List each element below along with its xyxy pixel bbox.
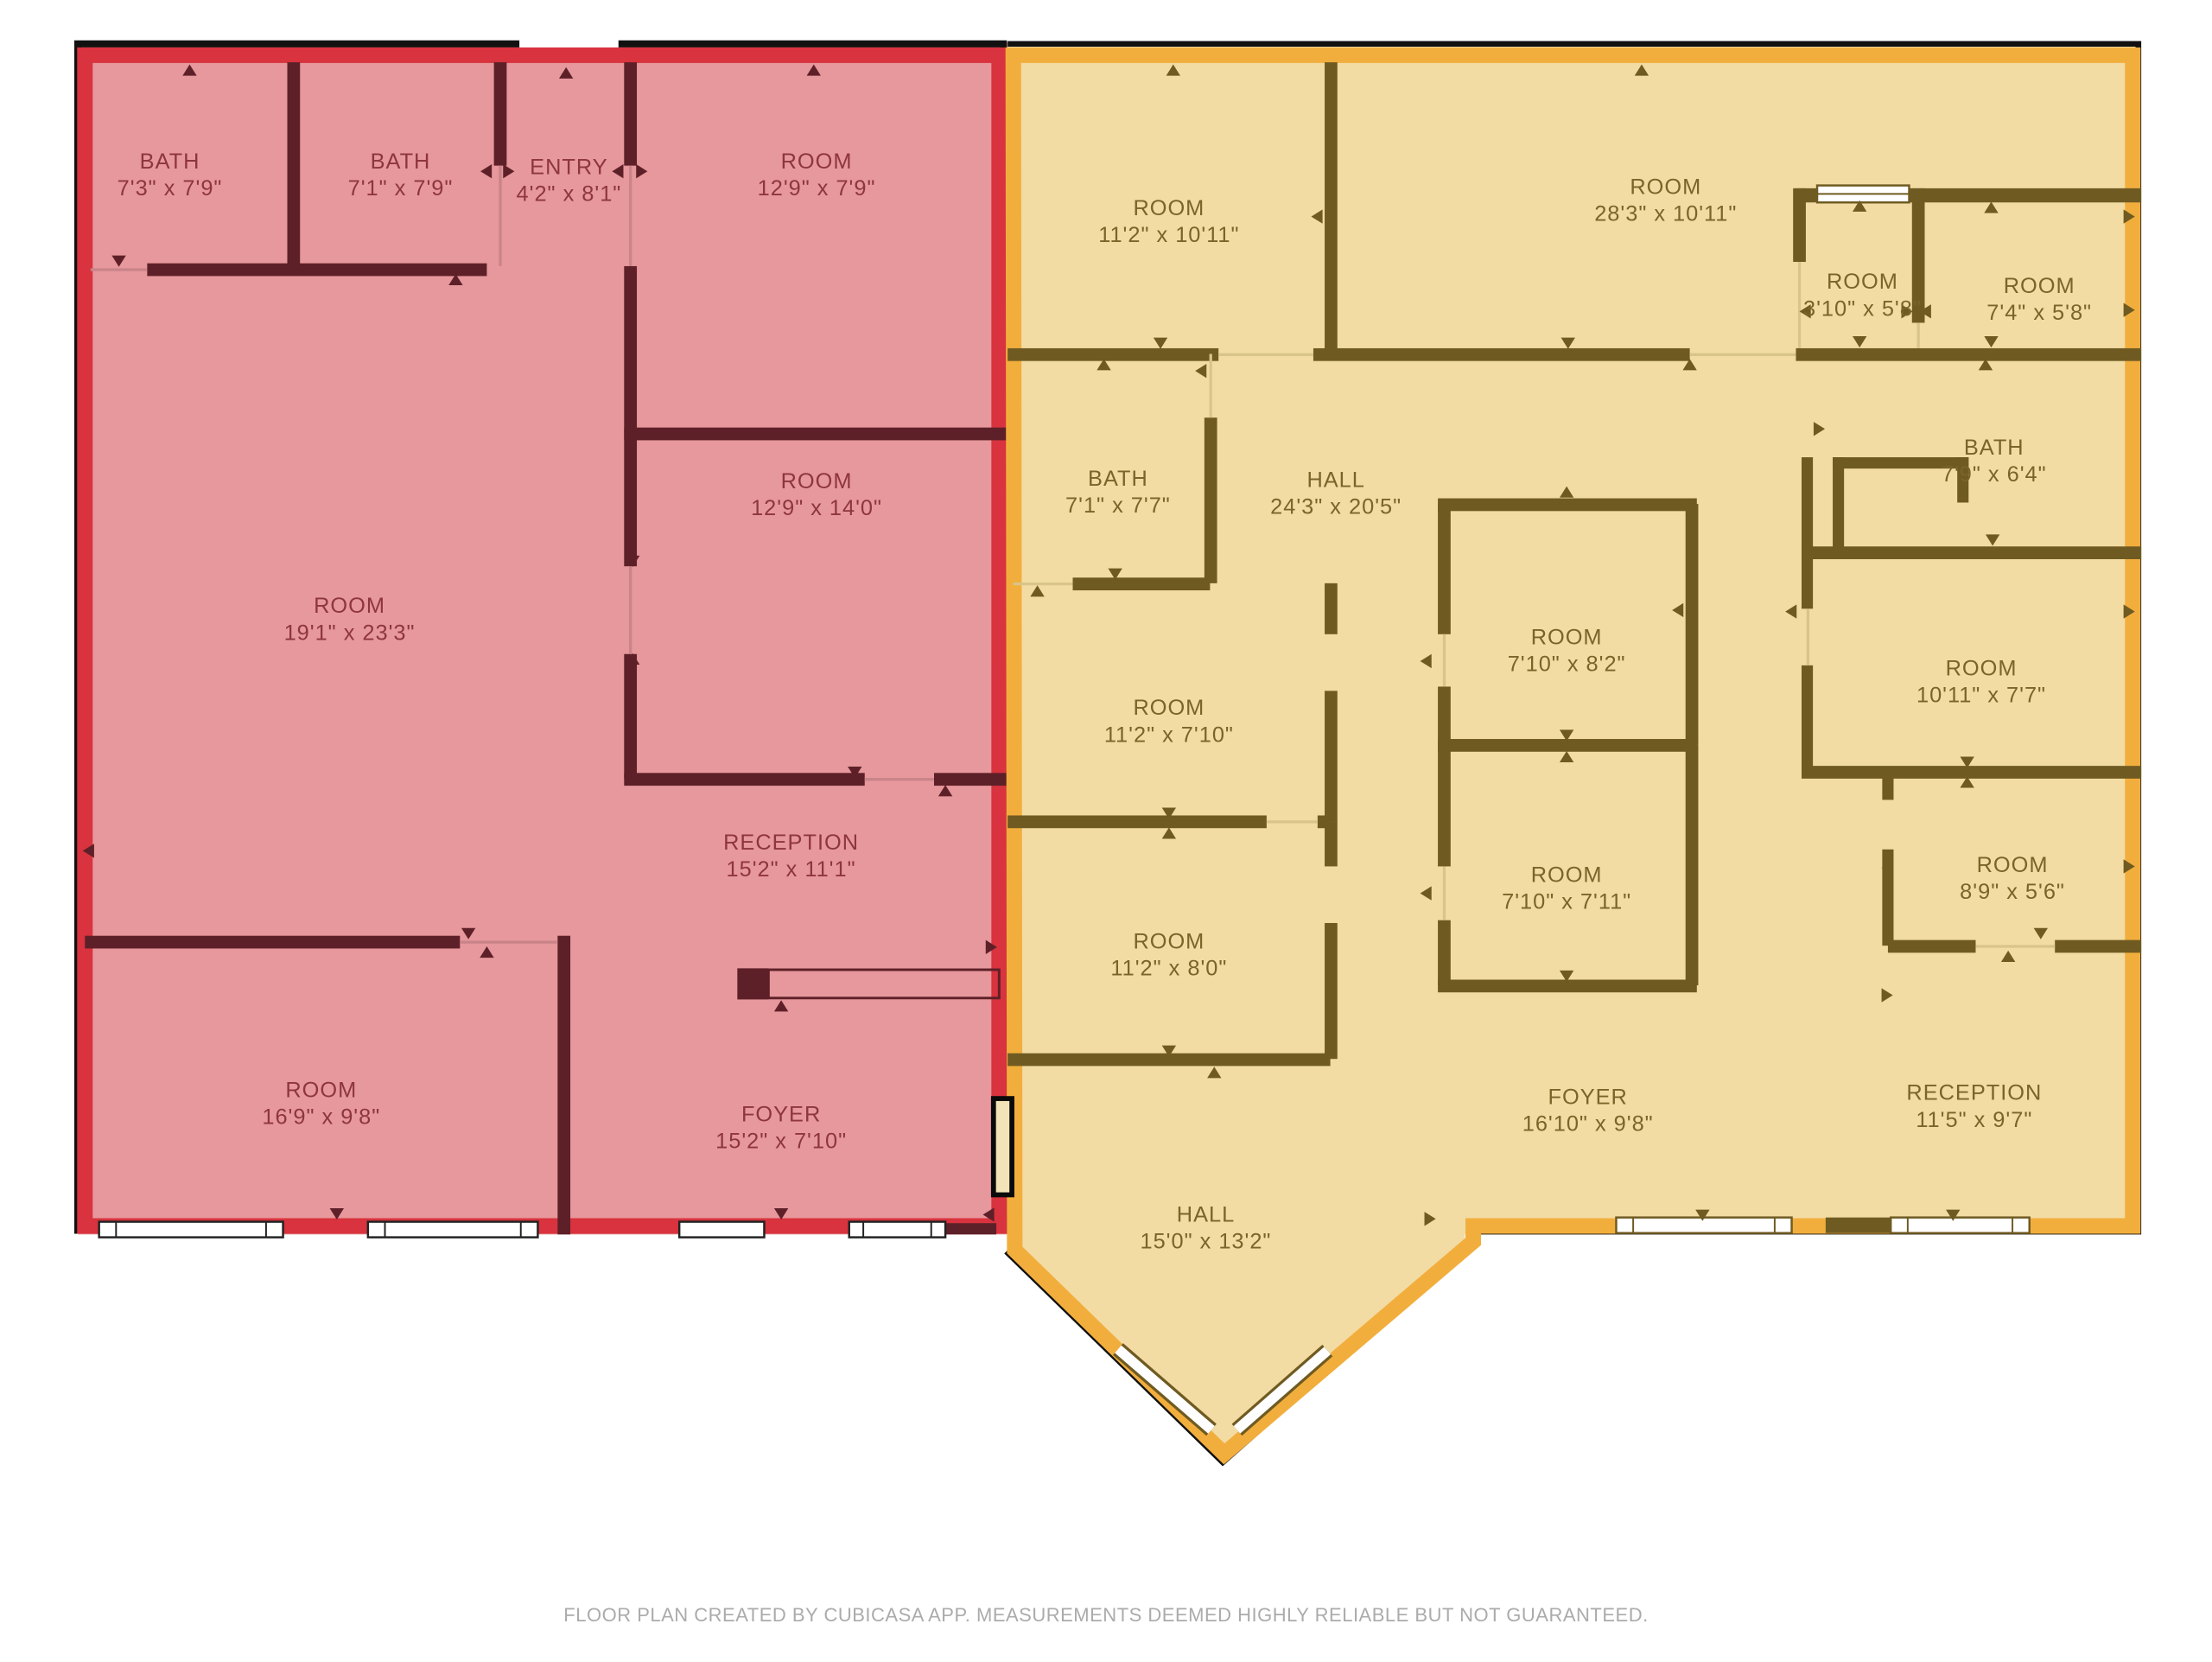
floor-plan: BATH7'3" x 7'9"BATH7'1" x 7'9"ENTRY4'2" … bbox=[0, 0, 2212, 1662]
red-zone-floor bbox=[78, 42, 1007, 1234]
floor-plan-canvas: BATH7'3" x 7'9"BATH7'1" x 7'9"ENTRY4'2" … bbox=[0, 0, 2212, 1662]
footer-disclaimer: FLOOR PLAN CREATED BY CUBICASA APP. MEAS… bbox=[0, 1604, 2212, 1627]
red-zone bbox=[78, 35, 1007, 1238]
junction-door-frame bbox=[994, 1098, 1012, 1194]
entry-door-gap bbox=[519, 35, 619, 48]
